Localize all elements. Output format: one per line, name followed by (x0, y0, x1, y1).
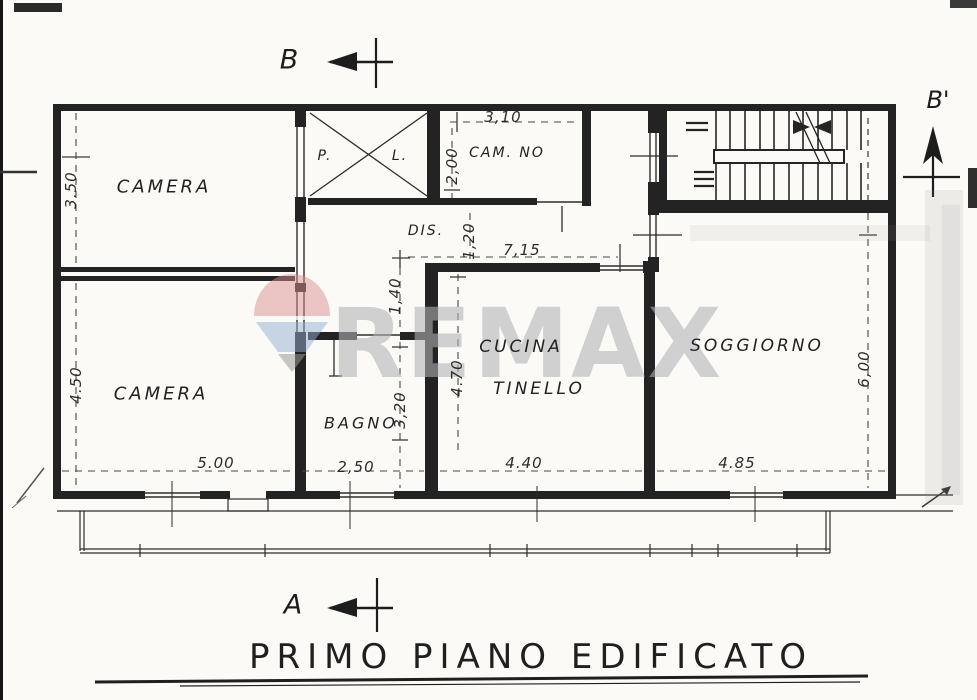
dim-3-10: 3,10 (484, 108, 521, 126)
dim-3-50: 3.50 (62, 171, 80, 208)
room-label-bagno: BAGNO (324, 414, 398, 433)
dim-4-50: 4.50 (67, 366, 85, 403)
room-label-tinello: TINELLO (493, 379, 585, 399)
dim-7-15: 7,15 (503, 241, 540, 259)
dim-4-40: 4.40 (505, 454, 542, 472)
room-label-soggiorno: SOGGIORNO (690, 336, 824, 356)
dim-4-70: 4.70 (448, 359, 466, 396)
room-label-disimpegno: DIS. (408, 223, 444, 239)
section-marker-b: B (280, 45, 299, 76)
dim-5-00: 5.00 (197, 454, 234, 472)
room-label-p-shaft: P. (318, 148, 333, 164)
page-title: PRIMO PIANO EDIFICATO (249, 637, 813, 677)
floorplan-page: REMAX CAMERA CAMERA CAM. NO DIS. P. L. B… (0, 0, 977, 700)
dim-2-00: 2,00 (443, 147, 461, 184)
room-label-camera-bottom: CAMERA (114, 384, 209, 405)
room-label-l-shaft: L. (392, 148, 408, 164)
room-label-camera-top: CAMERA (117, 177, 212, 198)
dim-3-20: 3,20 (391, 391, 409, 428)
dim-6-00: 6,00 (855, 350, 873, 387)
room-label-camerino: CAM. NO (469, 145, 545, 161)
section-marker-b-prime: B' (926, 86, 949, 114)
dim-4-85: 4.85 (718, 454, 755, 472)
room-label-cucina: CUCINA (479, 337, 563, 357)
section-marker-a: A (284, 590, 302, 621)
dim-1-20: 1,20 (460, 222, 478, 259)
dim-1-40: 1,40 (386, 277, 404, 314)
dim-2-50: 2,50 (337, 458, 374, 476)
